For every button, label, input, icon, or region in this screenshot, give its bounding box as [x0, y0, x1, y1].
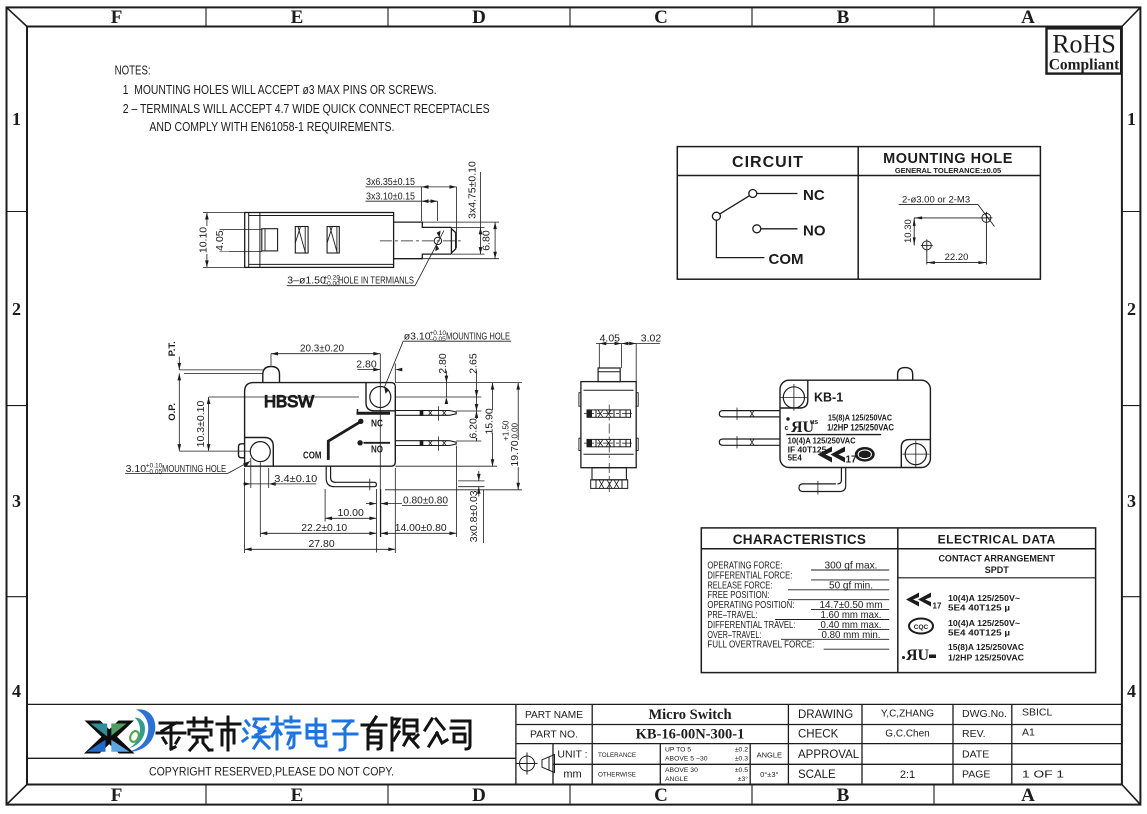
svg-text:COPYRIGHT RESERVED,PLEASE DO N: COPYRIGHT RESERVED,PLEASE DO NOT COPY. — [149, 767, 394, 779]
svg-text:B: B — [837, 785, 850, 806]
svg-text:3.10: 3.10 — [126, 463, 147, 475]
svg-text:GENERAL TOLERANCE:±0.05: GENERAL TOLERANCE:±0.05 — [895, 166, 1001, 175]
svg-text:PAGE: PAGE — [962, 769, 990, 781]
svg-text:UP TO 5: UP TO 5 — [665, 747, 691, 754]
svg-text:DRAWING: DRAWING — [798, 709, 853, 721]
svg-text:UNIT :: UNIT : — [557, 749, 587, 761]
svg-text:3x3.10±0.15: 3x3.10±0.15 — [366, 190, 415, 202]
svg-text:2.80: 2.80 — [437, 353, 449, 374]
svg-text:±3°: ±3° — [738, 775, 749, 783]
svg-text:+1.50: +1.50 — [502, 420, 511, 441]
svg-text:3x0.8±0.03: 3x0.8±0.03 — [468, 490, 480, 542]
svg-text:HOLE IN TERMIANLS: HOLE IN TERMIANLS — [338, 275, 414, 287]
svg-text:SBICL: SBICL — [1022, 707, 1053, 719]
svg-text:NC: NC — [371, 419, 383, 430]
svg-text:1: 1 — [12, 109, 21, 129]
svg-text:A: A — [1021, 785, 1035, 806]
svg-text:RoHS: RoHS — [1052, 30, 1116, 59]
svg-text:3: 3 — [1127, 491, 1136, 511]
svg-text:MOUNTING HOLE: MOUNTING HOLE — [162, 463, 226, 475]
svg-text:10.30: 10.30 — [903, 219, 914, 243]
svg-text:2.65: 2.65 — [468, 353, 480, 374]
svg-text:15(8)A 125/250VAC: 15(8)A 125/250VAC — [828, 413, 892, 423]
svg-text:3x4.75±0.10: 3x4.75±0.10 — [467, 161, 479, 219]
svg-text:C: C — [654, 785, 668, 806]
svg-text:ABOVE 5 ~30: ABOVE 5 ~30 — [665, 756, 708, 763]
svg-text:CQC: CQC — [914, 624, 929, 631]
svg-text:2:1: 2:1 — [900, 769, 915, 781]
svg-text:3: 3 — [12, 491, 21, 511]
svg-text:0.80±0.80: 0.80±0.80 — [403, 494, 448, 506]
svg-text:COM: COM — [769, 251, 804, 268]
svg-text:NOTES:: NOTES: — [115, 63, 151, 78]
svg-text:10.00: 10.00 — [338, 507, 364, 519]
svg-text:D: D — [472, 7, 486, 28]
svg-text:P.T.: P.T. — [167, 341, 178, 356]
svg-text:PART NAME: PART NAME — [525, 709, 583, 721]
svg-text:SPDT: SPDT — [985, 565, 1010, 575]
svg-text:B: B — [837, 7, 850, 28]
svg-text:5E4: 5E4 — [788, 453, 803, 462]
svg-text:NC: NC — [803, 187, 825, 204]
svg-text:SCALE: SCALE — [798, 769, 836, 781]
svg-text:REV.: REV. — [962, 728, 986, 740]
svg-text:ANGLE: ANGLE — [757, 751, 782, 760]
svg-text:4.05: 4.05 — [600, 332, 621, 344]
svg-text:Y,C,ZHANG: Y,C,ZHANG — [881, 709, 934, 720]
svg-text:27.80: 27.80 — [308, 538, 334, 550]
svg-text:±0.5: ±0.5 — [735, 767, 748, 774]
svg-text:MOUNTING HOLE: MOUNTING HOLE — [883, 151, 1013, 167]
svg-text:–0.05: –0.05 — [146, 469, 163, 476]
svg-text:KB-1: KB-1 — [814, 391, 843, 405]
svg-text:G.C.Chen: G.C.Chen — [885, 729, 929, 740]
svg-text:4: 4 — [1127, 681, 1136, 701]
svg-text:E: E — [291, 785, 304, 806]
svg-text:1/2HP 125/250VAC: 1/2HP 125/250VAC — [827, 423, 894, 434]
svg-text:2-ø3.00 or 2-M3: 2-ø3.00 or 2-M3 — [902, 195, 970, 206]
svg-text:14.00±0.80: 14.00±0.80 — [395, 522, 447, 534]
svg-text:1 MOUNTING HOLES WILL ACCEPT: 1 MOUNTING HOLES WILL ACCEPT ø3 MAX PINS… — [123, 82, 437, 97]
svg-text:ELECTRICAL DATA: ELECTRICAL DATA — [938, 533, 1056, 547]
svg-text:20.3±0.20: 20.3±0.20 — [300, 343, 344, 355]
svg-text:2: 2 — [1127, 299, 1136, 319]
svg-text:APPROVAL: APPROVAL — [798, 749, 860, 761]
svg-text:A: A — [1021, 7, 1035, 28]
svg-text:DATE: DATE — [962, 749, 989, 761]
svg-text:ЯU: ЯU — [906, 647, 930, 664]
svg-text:1 OF 1: 1 OF 1 — [1022, 769, 1064, 781]
svg-text:5E4 40T125 µ: 5E4 40T125 µ — [948, 604, 1010, 613]
svg-text:OTHERWISE: OTHERWISE — [598, 772, 636, 779]
svg-text:DWG.No.: DWG.No. — [962, 708, 1007, 720]
svg-text:6.20: 6.20 — [467, 418, 479, 439]
svg-text:1/2HP 125/250VAC: 1/2HP 125/250VAC — [948, 654, 1024, 663]
svg-text:TOLERANCE: TOLERANCE — [598, 752, 636, 759]
svg-text:3–ø1.50: 3–ø1.50 — [287, 275, 326, 287]
svg-text:HBSW: HBSW — [264, 393, 314, 411]
svg-text:4: 4 — [12, 681, 21, 701]
svg-text:6.80: 6.80 — [481, 230, 493, 251]
svg-text:CHARACTERISTICS: CHARACTERISTICS — [733, 532, 867, 547]
svg-text:CONTACT ARRANGEMENT: CONTACT ARRANGEMENT — [938, 554, 1055, 564]
svg-text:2 – TERMINALS WILL ACCEPT 4.7: 2 – TERMINALS WILL ACCEPT 4.7 WIDE QUICK… — [123, 101, 490, 116]
svg-text:3.02: 3.02 — [641, 332, 662, 344]
svg-text:C: C — [654, 7, 668, 28]
svg-text:NO: NO — [371, 445, 383, 456]
svg-text:F: F — [111, 7, 123, 28]
svg-text:E: E — [291, 7, 304, 28]
svg-text:CHECK: CHECK — [798, 729, 839, 741]
svg-text:COM: COM — [303, 451, 322, 462]
svg-text:D: D — [472, 785, 486, 806]
svg-text:ANGLE: ANGLE — [665, 776, 689, 783]
svg-text:Micro Switch: Micro Switch — [648, 707, 731, 723]
svg-text:AND COMPLY WITH EN61058-1 REQU: AND COMPLY WITH EN61058-1 REQUIREMENTS. — [149, 119, 394, 134]
svg-text:MOUNTING HOLE: MOUNTING HOLE — [446, 330, 510, 342]
svg-text:FULL OVERTRAVEL FORCE:: FULL OVERTRAVEL FORCE: — [707, 639, 814, 651]
svg-text:mm: mm — [563, 769, 581, 781]
svg-text:PART NO.: PART NO. — [530, 729, 578, 741]
svg-text:ø3.10: ø3.10 — [404, 330, 431, 342]
svg-text:–0.05: –0.05 — [430, 336, 447, 343]
svg-text:0°±3°: 0°±3° — [760, 770, 778, 779]
svg-text:3.4±0.10: 3.4±0.10 — [274, 473, 317, 485]
svg-text:10.3±0.10: 10.3±0.10 — [195, 401, 207, 448]
svg-text:10.10: 10.10 — [198, 227, 210, 253]
svg-text:15(8)A 125/250VAC: 15(8)A 125/250VAC — [948, 643, 1024, 652]
svg-text:ABOVE 30: ABOVE 30 — [665, 767, 698, 774]
svg-text:17: 17 — [933, 602, 942, 611]
svg-text:c: c — [785, 425, 789, 432]
svg-text:us: us — [810, 419, 818, 426]
svg-text:4.05: 4.05 — [214, 230, 226, 251]
svg-text:KB-16-00N-300-1: KB-16-00N-300-1 — [636, 727, 745, 743]
svg-text:NO: NO — [803, 223, 826, 240]
svg-text:2.80: 2.80 — [356, 359, 377, 371]
svg-text:A1: A1 — [1022, 727, 1035, 739]
svg-text:CQC: CQC — [859, 453, 871, 459]
svg-text:3x6.35±0.15: 3x6.35±0.15 — [366, 176, 415, 188]
svg-text:±0.3: ±0.3 — [735, 756, 748, 763]
svg-text:F: F — [111, 785, 123, 806]
svg-text:10(4)A 125/250V~: 10(4)A 125/250V~ — [948, 594, 1020, 603]
svg-text:0.00: 0.00 — [511, 422, 520, 438]
svg-text:Compliant: Compliant — [1049, 57, 1120, 74]
svg-text:O.P.: O.P. — [167, 403, 178, 421]
svg-text:22.2±0.10: 22.2±0.10 — [301, 522, 347, 534]
svg-text:5E4 40T125 µ: 5E4 40T125 µ — [948, 629, 1010, 638]
svg-text:19.70: 19.70 — [509, 440, 521, 466]
svg-text:15.90: 15.90 — [483, 408, 495, 434]
svg-text:10(4)A 125/250V~: 10(4)A 125/250V~ — [948, 619, 1020, 628]
svg-text:1: 1 — [1127, 109, 1136, 129]
svg-text:2: 2 — [12, 299, 21, 319]
svg-text:22.20: 22.20 — [945, 252, 969, 263]
svg-text:±0.2: ±0.2 — [735, 747, 748, 754]
svg-text:CIRCUIT: CIRCUIT — [732, 154, 804, 171]
